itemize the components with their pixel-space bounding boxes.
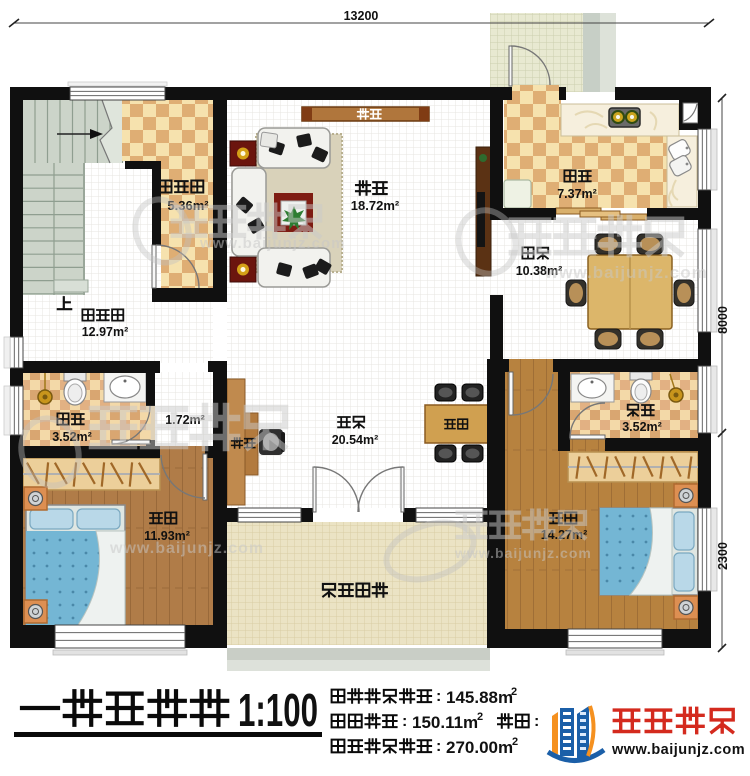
svg-text:8000: 8000 <box>716 306 730 334</box>
svg-text:www.baijunjz.com: www.baijunjz.com <box>544 263 708 282</box>
svg-text:2300: 2300 <box>716 542 730 570</box>
svg-text:12.97m²: 12.97m² <box>82 325 129 339</box>
svg-text:2: 2 <box>512 736 518 748</box>
svg-text:1:100: 1:100 <box>238 685 318 736</box>
svg-text:270.00m: 270.00m <box>446 738 513 757</box>
svg-text:2: 2 <box>511 686 517 698</box>
svg-text:2: 2 <box>477 711 483 723</box>
svg-text:www.baijunjz.com: www.baijunjz.com <box>454 545 592 561</box>
svg-text::: : <box>534 713 539 730</box>
svg-text::: : <box>436 738 441 755</box>
svg-text::: : <box>436 688 441 705</box>
svg-text:150.11m: 150.11m <box>412 713 478 732</box>
svg-text:13200: 13200 <box>344 9 379 23</box>
svg-text:www.baijunjz.com: www.baijunjz.com <box>199 235 345 252</box>
svg-text:www.baijunjz.com: www.baijunjz.com <box>611 742 745 758</box>
svg-text:18.72m²: 18.72m² <box>351 198 400 213</box>
svg-text::: : <box>402 713 407 730</box>
svg-text:3.52m²: 3.52m² <box>622 420 662 434</box>
svg-text:www.baijunjz.com: www.baijunjz.com <box>109 540 264 557</box>
svg-text:20.54m²: 20.54m² <box>332 433 379 447</box>
svg-text:7.37m²: 7.37m² <box>557 187 597 201</box>
svg-text:145.88m: 145.88m <box>446 688 513 707</box>
